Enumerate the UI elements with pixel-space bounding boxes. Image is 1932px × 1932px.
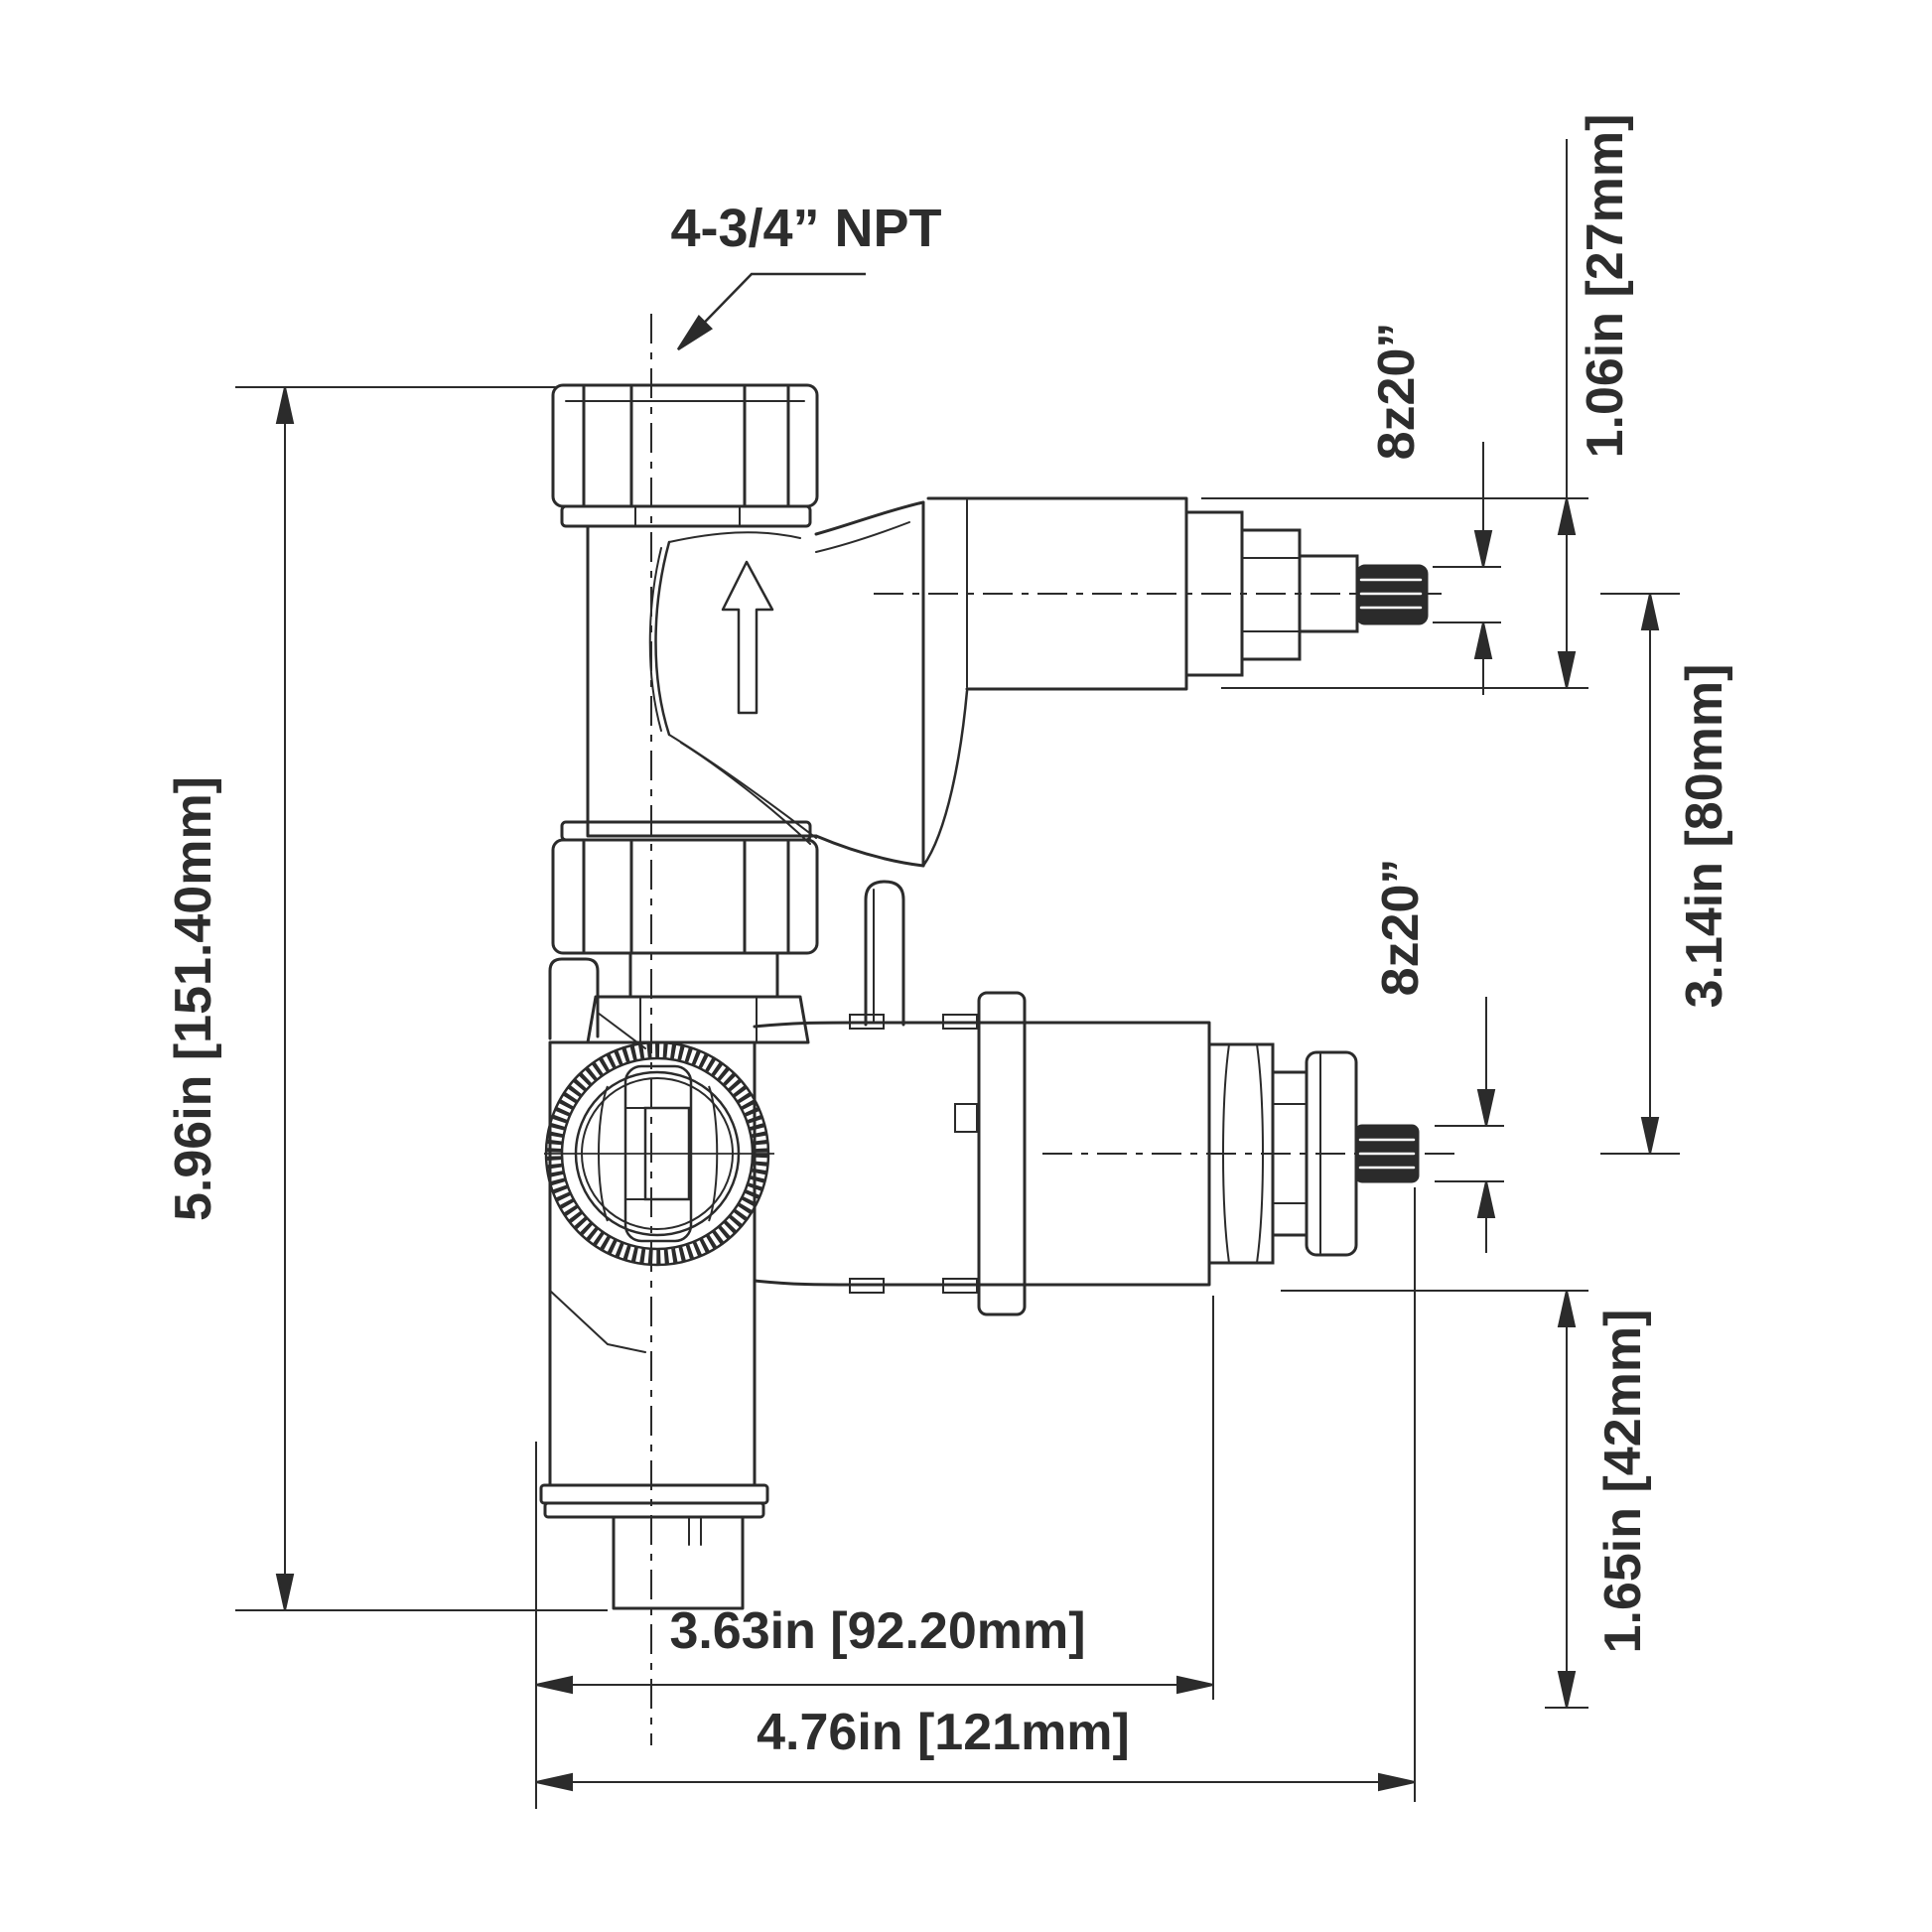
collar <box>588 997 808 1042</box>
arrow-right-icon <box>1379 1774 1415 1790</box>
cartridge-diameter-label: 1.06in [27mm] <box>1577 114 1634 459</box>
arrow-up-icon <box>1475 622 1491 658</box>
bottom-offset-label: 1.65in [42mm] <box>1594 1310 1652 1654</box>
dim-spline-top <box>1433 442 1501 695</box>
arrow-down-icon <box>1559 652 1575 688</box>
upper-body-outline <box>588 526 816 836</box>
transition-bottom <box>755 1281 1025 1285</box>
cone-inner-line <box>816 522 909 552</box>
bottom-union-nut <box>553 840 817 953</box>
arrow-down-icon <box>1475 531 1491 567</box>
flow-direction-arrow-icon <box>723 562 772 713</box>
arrow-left-icon <box>536 1774 572 1790</box>
cone-bottom-edge <box>816 836 923 866</box>
arrow-left-icon <box>536 1677 572 1693</box>
arrow-up-icon <box>277 387 293 423</box>
spline-top-label: 8z20” <box>1368 323 1426 461</box>
depth-inner-label: 3.63in [92.20mm] <box>669 1602 1085 1660</box>
npt-label: 4-3/4” NPT <box>670 199 941 258</box>
ticks <box>1433 567 1501 622</box>
dim-spline-bottom <box>1435 997 1504 1253</box>
npt-callout <box>678 274 866 349</box>
upper-sweep-curve <box>669 532 800 542</box>
vent-pipe <box>866 882 903 1025</box>
seat-curve-outer <box>656 542 670 735</box>
spline-bottom-label: 8z20” <box>1372 859 1430 997</box>
arrow-down-icon <box>1642 1118 1658 1154</box>
bottom-flange-band <box>545 1503 763 1517</box>
top-union-nut <box>553 385 817 506</box>
centerlines <box>651 314 1459 1745</box>
arrow-down-icon <box>277 1575 293 1610</box>
arrow-down-icon <box>1559 1672 1575 1708</box>
top-nut-lip <box>562 506 810 526</box>
ticks <box>1600 594 1680 1154</box>
dim-port-offset <box>1600 594 1680 1154</box>
neck <box>630 953 777 997</box>
bottom-port <box>614 1517 743 1608</box>
cone-close-curve <box>923 691 967 866</box>
cone-top-edge <box>816 502 923 534</box>
dim-total-height <box>235 387 608 1610</box>
total-height-label: 5.96in [151.40mm] <box>165 776 222 1221</box>
valve-technical-drawing: 5.96in [151.40mm] 4-3/4” NPT 8z20” 1.06i… <box>0 0 1932 1932</box>
left-lower-rib <box>550 1291 645 1352</box>
arrow-down-icon <box>1478 1090 1494 1126</box>
arrow-up-icon <box>1642 594 1658 629</box>
bottom-nut-facets <box>584 842 788 951</box>
depth-outer-label: 4.76in [121mm] <box>757 1704 1130 1761</box>
bottom-flange <box>541 1485 767 1503</box>
top-nut-facets <box>584 387 788 504</box>
lower-sweep-curve-2 <box>681 743 810 844</box>
collar-facets <box>640 997 757 1042</box>
control-boss <box>544 1042 774 1265</box>
leader-line <box>678 274 866 349</box>
arrow-up-icon <box>1559 1291 1575 1326</box>
port-offset-label: 3.14in [80mm] <box>1676 664 1733 1009</box>
drawing-page: 5.96in [151.40mm] 4-3/4” NPT 8z20” 1.06i… <box>0 0 1932 1932</box>
arrow-up-icon <box>1478 1181 1494 1217</box>
dim-bottom-offset <box>1281 1291 1588 1708</box>
transition-top <box>755 1023 1025 1027</box>
body-side-stub <box>955 1104 977 1132</box>
bottom-port-lines <box>689 1517 701 1545</box>
mounting-plate <box>979 993 1025 1314</box>
arrow-right-icon <box>1177 1677 1213 1693</box>
arrow-up-icon <box>1559 498 1575 534</box>
